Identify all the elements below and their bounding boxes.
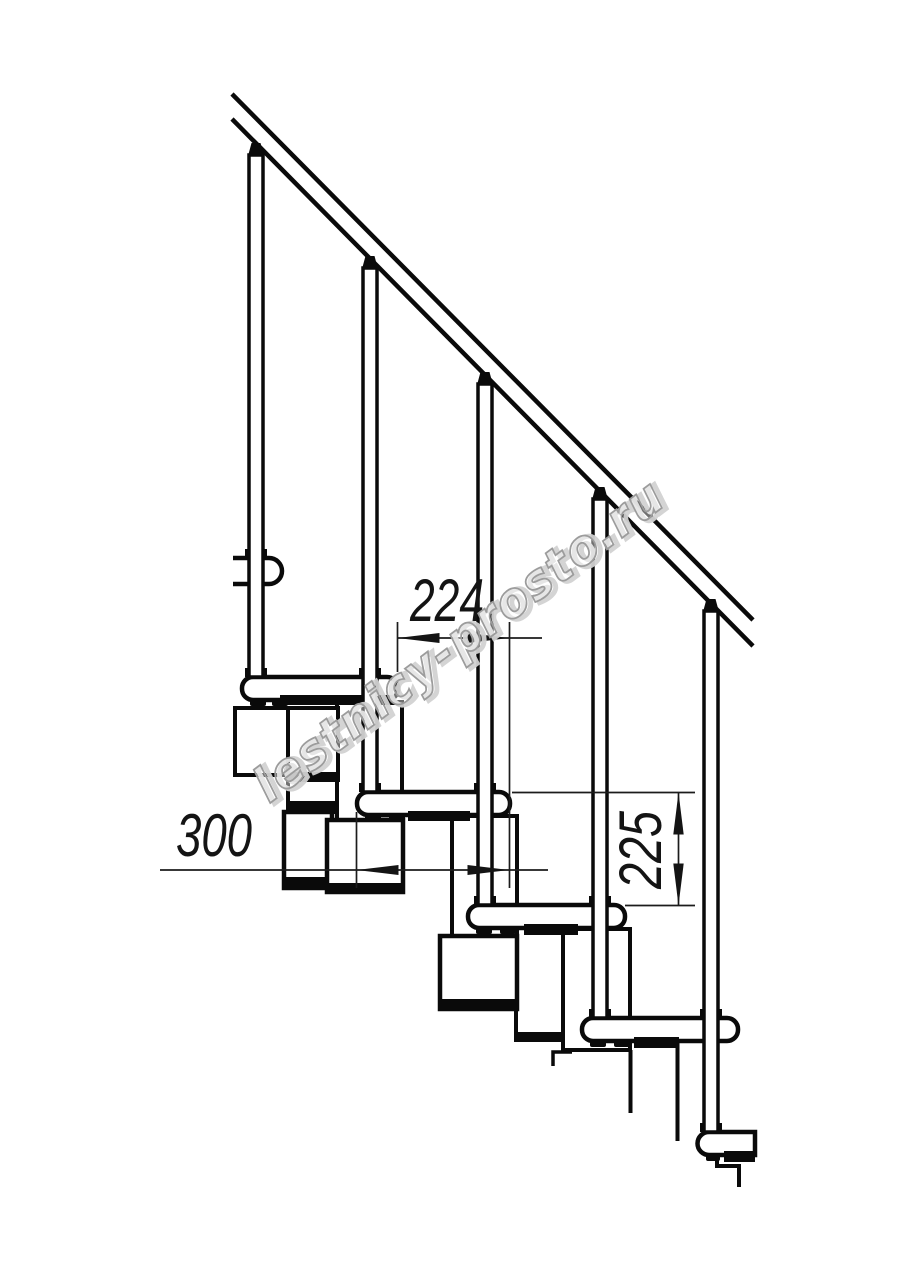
dimension-tread-depth: 300 bbox=[176, 802, 252, 869]
watermark-text: lestnicy-prosto.ru bbox=[243, 468, 676, 814]
watermark: lestnicy-prosto.ru lestnicy-prosto.ru bbox=[243, 466, 680, 816]
stair-elevation-drawing: 224 300 225 lestnicy-prosto.ru lestnicy-… bbox=[0, 0, 914, 1280]
baluster bbox=[249, 155, 263, 677]
baluster bbox=[704, 611, 718, 1132]
technical-drawing-page: 224 300 225 lestnicy-prosto.ru lestnicy-… bbox=[0, 0, 914, 1280]
dimension-step-rise: 225 bbox=[607, 811, 674, 890]
